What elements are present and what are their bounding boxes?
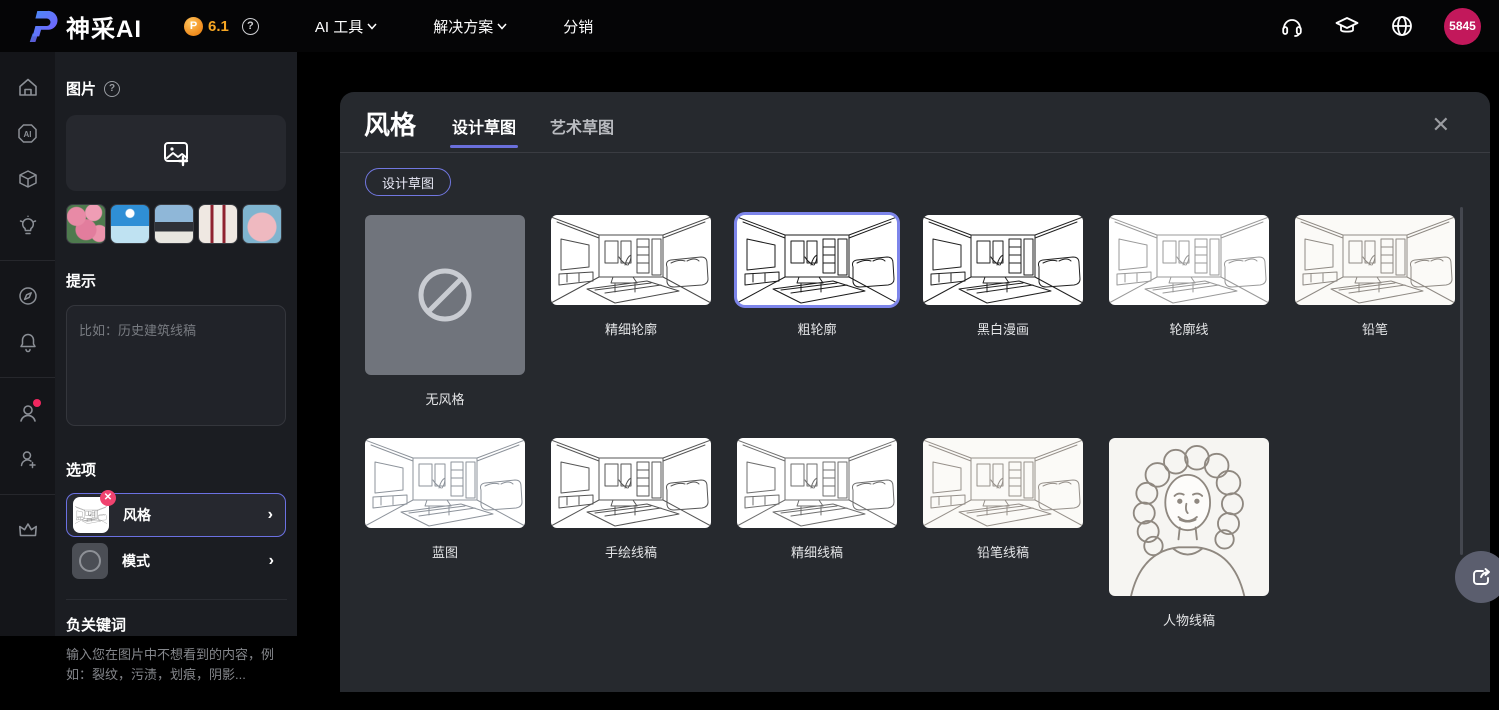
sample-images	[66, 204, 287, 244]
sample-illustration[interactable]	[110, 204, 150, 244]
negative-keywords-title: 负关键词	[66, 614, 287, 635]
style-grid: 无风格 精细轮廓 粗轮廓 黑白漫画 轮廓线	[340, 196, 1490, 629]
graduation-cap-icon[interactable]	[1334, 14, 1360, 38]
divider	[340, 152, 1490, 153]
nav-item-ai-tools[interactable]: AI 工具	[315, 16, 377, 37]
style-grid-row: 无风格 精细轮廓 粗轮廓 黑白漫画 轮廓线	[365, 215, 1490, 408]
prompt-title: 提示	[66, 270, 287, 291]
cube-icon	[17, 168, 39, 190]
logo-icon	[26, 9, 58, 43]
sidebar-item-explore[interactable]	[0, 273, 55, 319]
sample-architecture[interactable]	[154, 204, 194, 244]
user-add-icon	[17, 448, 39, 470]
generation-panel: 图片 ? 提示 选项 ✕ 风格 › 模式	[55, 52, 297, 636]
style-tile-portrait-lineart[interactable]: 人物线稿	[1109, 438, 1269, 629]
modal-scrollbar[interactable]	[1460, 207, 1463, 555]
options-title: 选项	[66, 459, 287, 480]
style-tile-pencil[interactable]: 铅笔	[1295, 215, 1455, 338]
top-navbar: 神采AI P 6.1 ? AI 工具 解决方案 分销	[0, 0, 1499, 52]
sidebar-item-ai[interactable]: AI	[0, 110, 55, 156]
crown-icon	[17, 519, 39, 541]
sample-roses[interactable]	[66, 204, 106, 244]
nav-item-distribution[interactable]: 分销	[563, 16, 593, 37]
credits-balance[interactable]: P 6.1 ?	[184, 17, 259, 36]
sample-skirt[interactable]	[242, 204, 282, 244]
navbar-right: 5845	[1280, 8, 1481, 45]
ai-hexagon-icon: AI	[16, 122, 39, 145]
nav-menu: AI 工具 解决方案 分销	[315, 16, 593, 37]
sidebar-item-account[interactable]	[0, 390, 55, 436]
modal-header: 风格 设计草图 艺术草图	[340, 92, 1490, 152]
brand-logo[interactable]: 神采AI	[26, 9, 142, 44]
sidebar-item-3d[interactable]	[0, 156, 55, 202]
image-upload-dropzone[interactable]	[66, 115, 286, 191]
portrait-sketch	[1109, 438, 1269, 596]
negative-keywords-section: 负关键词	[66, 599, 287, 710]
sidebar-item-invite[interactable]	[0, 436, 55, 482]
sidebar-item-ideas[interactable]	[0, 202, 55, 248]
svg-text:AI: AI	[24, 129, 32, 138]
style-thumbnail: ✕	[73, 497, 109, 533]
chevron-right-icon: ›	[268, 506, 273, 524]
globe-icon[interactable]	[1390, 14, 1414, 38]
notification-dot	[33, 399, 41, 407]
circle-icon	[79, 550, 101, 572]
modal-tabs: 设计草图 艺术草图	[452, 114, 614, 152]
lightbulb-icon	[17, 214, 39, 236]
coin-count: 6.1	[208, 18, 229, 35]
option-row-mode[interactable]: 模式 ›	[66, 539, 286, 583]
tab-art-sketch[interactable]: 艺术草图	[550, 114, 614, 152]
share-icon	[1469, 565, 1493, 589]
question-circle-icon[interactable]: ?	[104, 81, 120, 97]
chevron-down-icon	[497, 23, 507, 30]
headphones-icon[interactable]	[1280, 14, 1304, 38]
tab-design-sketch[interactable]: 设计草图	[452, 114, 516, 152]
brand-name: 神采AI	[66, 9, 142, 44]
mode-thumbnail	[72, 543, 108, 579]
style-tile-blueprint[interactable]: 蓝图	[365, 438, 525, 561]
style-tile-hand-drawn[interactable]: 手绘线稿	[551, 438, 711, 561]
negative-keywords-input[interactable]	[66, 645, 286, 705]
main-content: 风格 设计草图 艺术草图 ✕ 设计草图 无风格	[297, 52, 1499, 636]
style-tile-bw-comic[interactable]: 黑白漫画	[923, 215, 1083, 338]
nav-item-solutions[interactable]: 解决方案	[433, 16, 507, 37]
style-tile-pencil-lineart[interactable]: 铅笔线稿	[923, 438, 1083, 561]
prompt-input[interactable]	[66, 305, 286, 426]
image-add-icon	[160, 137, 192, 169]
filter-pill-design-sketch[interactable]: 设计草图	[365, 168, 451, 196]
chevron-down-icon	[367, 23, 377, 30]
style-grid-row: 蓝图 手绘线稿 精细线稿 铅笔线稿 人物线稿	[365, 438, 1490, 629]
sample-fashion[interactable]	[198, 204, 238, 244]
avatar[interactable]: 5845	[1444, 8, 1481, 45]
modal-title: 风格	[364, 112, 416, 152]
remove-style-icon[interactable]: ✕	[100, 490, 116, 506]
icon-sidebar: AI	[0, 52, 55, 636]
style-tile-fine-outline[interactable]: 精细轮廓	[551, 215, 711, 338]
home-icon	[17, 76, 39, 98]
style-tile-none[interactable]: 无风格	[365, 215, 525, 408]
sidebar-item-notifications[interactable]	[0, 319, 55, 365]
ban-icon	[412, 262, 478, 328]
compass-icon	[17, 285, 39, 307]
sidebar-item-membership[interactable]	[0, 507, 55, 553]
sidebar-item-home[interactable]	[0, 64, 55, 110]
close-icon[interactable]: ✕	[1432, 114, 1450, 136]
style-tile-rough-outline[interactable]: 粗轮廓	[737, 215, 897, 338]
style-picker-modal: 风格 设计草图 艺术草图 ✕ 设计草图 无风格	[340, 92, 1490, 692]
chevron-right-icon: ›	[269, 552, 274, 570]
share-button[interactable]	[1455, 551, 1499, 603]
help-icon[interactable]: ?	[242, 18, 259, 35]
option-row-style[interactable]: ✕ 风格 ›	[66, 493, 286, 537]
bell-icon	[17, 331, 39, 353]
no-style-thumb	[365, 215, 525, 375]
image-section-title: 图片 ?	[66, 78, 287, 99]
coin-icon: P	[184, 17, 203, 36]
style-tile-contour-line[interactable]: 轮廓线	[1109, 215, 1269, 338]
style-tile-fine-lineart[interactable]: 精细线稿	[737, 438, 897, 561]
